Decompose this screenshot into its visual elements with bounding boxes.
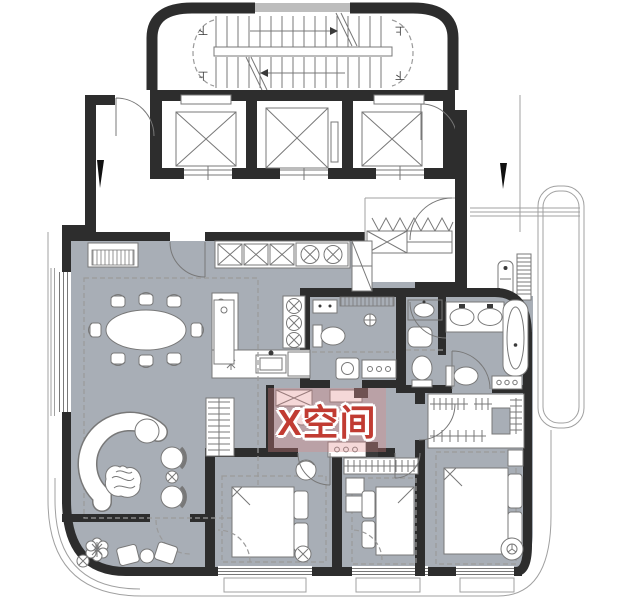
pendant-light [364, 314, 376, 326]
shower-tray [408, 327, 432, 347]
bath-mat [340, 297, 394, 306]
double-sink [446, 302, 504, 332]
vent-strip [255, 3, 350, 12]
floor-plan-drawing: 下 上 上 下 [0, 0, 640, 611]
pillow [362, 491, 375, 518]
toilet [313, 325, 345, 347]
stair-core: 下 上 上 下 [152, 3, 453, 90]
tv-cabinet [214, 300, 234, 364]
washing-machine [336, 358, 359, 379]
shaft-marker [97, 160, 104, 188]
watermark: X空间 [268, 388, 386, 452]
sideboard [88, 243, 138, 267]
wardrobe-hangers [344, 458, 418, 474]
stair-treads [214, 16, 392, 88]
drawer-unit [492, 376, 522, 389]
entry-cabinet [367, 231, 452, 253]
armchair [161, 447, 185, 469]
wall-basin [313, 300, 337, 313]
stair-label-top-left: 下 [198, 24, 208, 35]
floor-plan-page: 下 上 上 下 [0, 0, 640, 611]
drawer-unit [362, 360, 396, 378]
round-nightstand [501, 538, 523, 560]
stair-landing-rail [214, 47, 392, 56]
fridge [352, 241, 372, 291]
bed [362, 487, 414, 555]
nightstand [508, 450, 523, 466]
watermark-text: X空间 [277, 394, 376, 446]
window [57, 272, 71, 412]
door-swing [116, 98, 154, 136]
stair-label-top-right: 上 [395, 24, 405, 36]
ac-louver-grille [517, 254, 531, 300]
stove-burners [296, 243, 348, 266]
coffee-table [105, 466, 141, 497]
window [218, 566, 312, 592]
window [456, 566, 514, 592]
shelf-box [346, 478, 364, 494]
master-closet [419, 394, 524, 448]
floor-cushion [140, 549, 154, 563]
pillow [294, 491, 308, 519]
kitchen-counter [215, 241, 350, 268]
armchair [161, 486, 185, 508]
elevator-car [362, 95, 424, 166]
stair-label-bottom-left: 上 [198, 69, 208, 81]
round-pouf [135, 419, 159, 443]
pillow [508, 474, 522, 508]
elevator-car [266, 108, 338, 168]
elevator-car [176, 95, 236, 166]
closet-hangers [206, 398, 234, 456]
toilet [446, 366, 478, 386]
elevator-bank [150, 90, 455, 180]
side-table [166, 471, 178, 483]
shelf-box [346, 496, 364, 512]
toilet [412, 356, 432, 387]
stair-label-bottom-right: 下 [395, 69, 405, 80]
entry-foyer [365, 198, 455, 282]
bathtub [503, 300, 528, 376]
shaft-marker [500, 163, 507, 189]
bedside-table [295, 546, 311, 562]
pillow [362, 521, 375, 548]
closet-dresser [492, 408, 510, 434]
